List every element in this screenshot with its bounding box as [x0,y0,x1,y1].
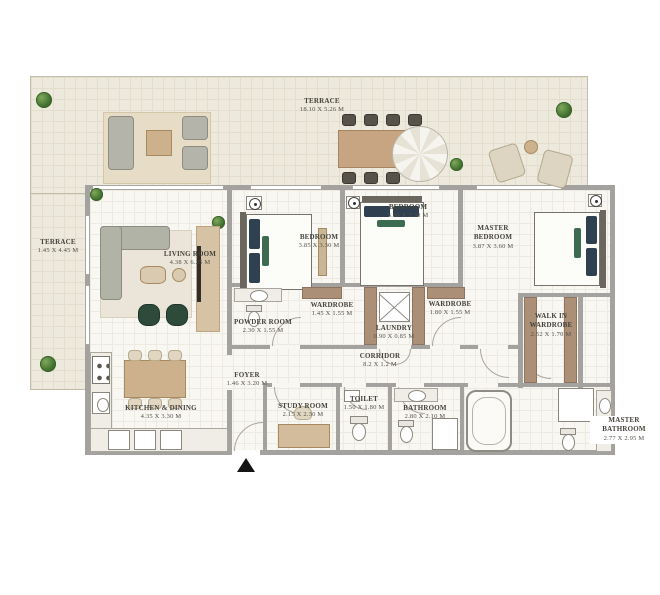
lamp-icon [348,197,360,209]
wall-walkin-left [518,293,523,388]
window-bedroom2 [352,185,440,190]
terrace-dining-chair-7 [386,172,400,184]
terrace-side-table [524,140,538,154]
master-basin-1 [599,398,611,414]
terrace-dining-chair-6 [364,172,378,184]
wall-bed2-master [458,185,463,285]
plant-icon [40,356,56,372]
master-bed-headboard [600,210,606,288]
terrace-coffee-table [146,130,172,156]
entrance-arrow-icon [237,458,255,472]
window-living-left-1 [85,215,90,275]
lamp-icon [590,195,602,207]
washing-machine-icon [379,292,410,322]
wall-foyer-study [263,383,267,453]
dishwasher-icon [134,430,156,450]
living-sofa-left [100,226,122,300]
terrace-dining-chair-2 [364,114,378,126]
dining-chair-1 [128,350,142,361]
terrace-armchair-2 [182,146,208,170]
floor-plan: TERRACE 18.10 x 5.26 m TERRACE 1.45 x 4.… [0,0,660,595]
plant-icon [90,188,103,201]
label-toilet: TOILET 1.50 x 1.80 m [340,395,388,413]
powder-basin [250,290,268,302]
terrace-dining-chair-3 [386,114,400,126]
kitchen-sink [92,392,110,414]
label-master-bedroom: MASTER BEDROOM 3.87 x 3.60 m [468,224,518,252]
living-armchair-1 [138,304,160,326]
bed1-accent-pillow [262,236,269,266]
umbrella-icon [392,126,448,182]
label-master-bathroom: MASTER BATHROOM 2.77 x 2.95 m [590,416,658,444]
dining-table [124,360,186,398]
window-living-terrace-slider [92,185,224,190]
door-gap-masterbath [468,383,498,387]
window-master-bedroom [476,185,562,190]
bed1-pillow-1 [249,219,260,249]
dining-chair-2 [148,350,162,361]
label-laundry: LAUNDRY 0.90 x 0.85 m [368,324,420,342]
appliance-icon [160,430,182,450]
terrace-sofa [108,116,134,170]
label-bedroom1: BEDROOM 3.85 x 3.30 m [294,233,344,251]
master-toilet-icon [562,434,575,451]
label-terrace-top: TERRACE 18.10 x 5.26 m [272,97,372,115]
walkin-closet-left [524,297,537,383]
bed1-pillow-2 [249,253,260,283]
terrace-dining-chair-4 [408,114,422,126]
label-foyer: FOYER 1.46 x 3.20 m [224,371,270,389]
wall-bath-masterbath [460,387,464,453]
dining-chair-3 [168,350,182,361]
terrace-dining-chair-1 [342,114,356,126]
label-powder: POWDER ROOM 2.30 x 1.55 m [230,318,296,336]
window-living-left-2 [85,285,90,345]
wall-toilet-bath [388,387,392,453]
study-desk [278,424,330,448]
wardrobe2-closet [427,287,465,299]
lamp-icon [249,198,261,210]
label-bedroom2: BEDROOM 3.50 x 3.30 m [382,203,434,221]
terrace-dining-chair-5 [342,172,356,184]
walkin-closet-right [564,297,577,383]
master-shower [558,388,594,422]
living-round-table [172,268,186,282]
label-wardrobe1: WARDROBE 1.45 x 1.55 m [304,301,360,319]
wardrobe1-closet [302,287,342,299]
toilet-icon [352,423,366,441]
plant-icon [556,102,572,118]
terrace-armchair-1 [182,116,208,140]
wall-walkin-right [578,293,583,388]
label-living: LIVING ROOM 4.38 x 6.25 m [145,250,235,268]
bathroom-basin [408,390,426,402]
master-bed-pillow-2 [586,248,597,276]
bathtub-icon [466,390,512,452]
bathroom-toilet-icon [400,426,413,443]
label-corridor: CORRIDOR 8.2 x 1.2 m [354,352,406,370]
label-study: STUDY ROOM 2.15 x 2.30 m [272,402,334,420]
wall-corridor-bottom [263,383,615,387]
plant-icon [450,158,463,171]
label-walkin: WALK IN WARDROBE 2.52 x 1.70 m [522,312,580,340]
master-bed-accent-pillow [574,228,581,258]
bathroom-shower [432,418,458,450]
living-armchair-2 [166,304,188,326]
plant-icon [36,92,52,108]
window-bedroom1 [250,185,322,190]
label-kitchen: KITCHEN & DINING 4.35 x 3.30 m [114,404,208,422]
terrace-left-floor [30,193,87,390]
label-wardrobe2: WARDROBE 1.80 x 1.55 m [422,300,478,318]
label-bathroom: BATHROOM 2.80 x 2.10 m [396,404,454,422]
living-coffee-table [140,266,166,284]
oven-icon [108,430,130,450]
label-terrace-left: TERRACE 1.45 x 4.45 m [32,238,84,256]
stove-icon [92,356,110,384]
master-bed-pillow-1 [586,216,597,244]
